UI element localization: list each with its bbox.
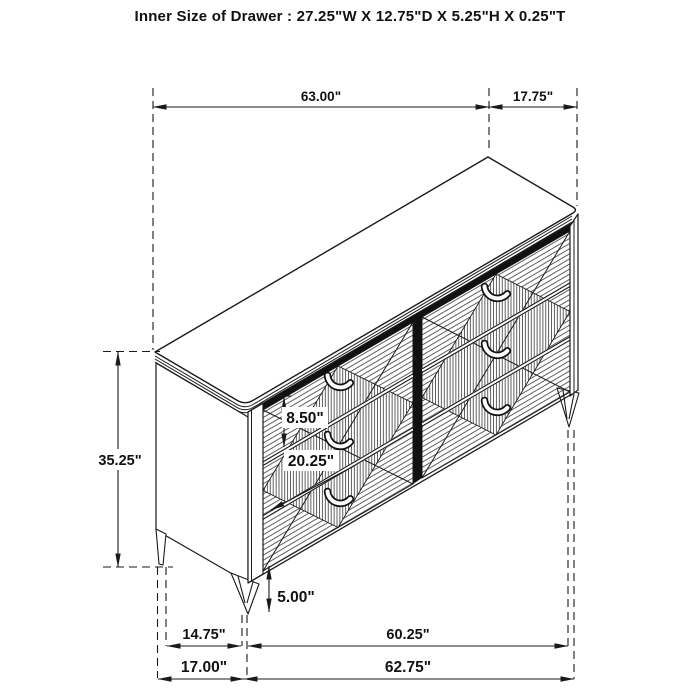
label-side-base-width: 17.00" [181, 659, 227, 676]
dresser-body [155, 157, 579, 614]
label-front-leg-spacing: 60.25" [386, 627, 429, 643]
dimension-diagram: Inner Size of Drawer : 27.25"W X 12.75"D… [0, 0, 700, 700]
label-leg-height: 5.00" [277, 589, 315, 606]
back-left-leg [156, 529, 166, 565]
center-divider [413, 317, 422, 484]
label-drawer-depth: 20.25" [288, 453, 334, 470]
label-top-width: 63.00" [301, 89, 341, 104]
front-left-stile [248, 403, 263, 583]
label-front-base-width: 62.75" [385, 659, 431, 676]
label-drawer-face-height: 8.50" [286, 410, 324, 427]
front-right-band [570, 214, 578, 396]
label-side-leg-spacing: 14.75" [182, 627, 225, 643]
dresser-drawing: 63.00" 17.75" 35.25" 8.50" 20.25" 5.00" … [0, 0, 700, 700]
label-overall-height: 35.25" [98, 453, 141, 469]
label-top-depth: 17.75" [513, 89, 553, 104]
